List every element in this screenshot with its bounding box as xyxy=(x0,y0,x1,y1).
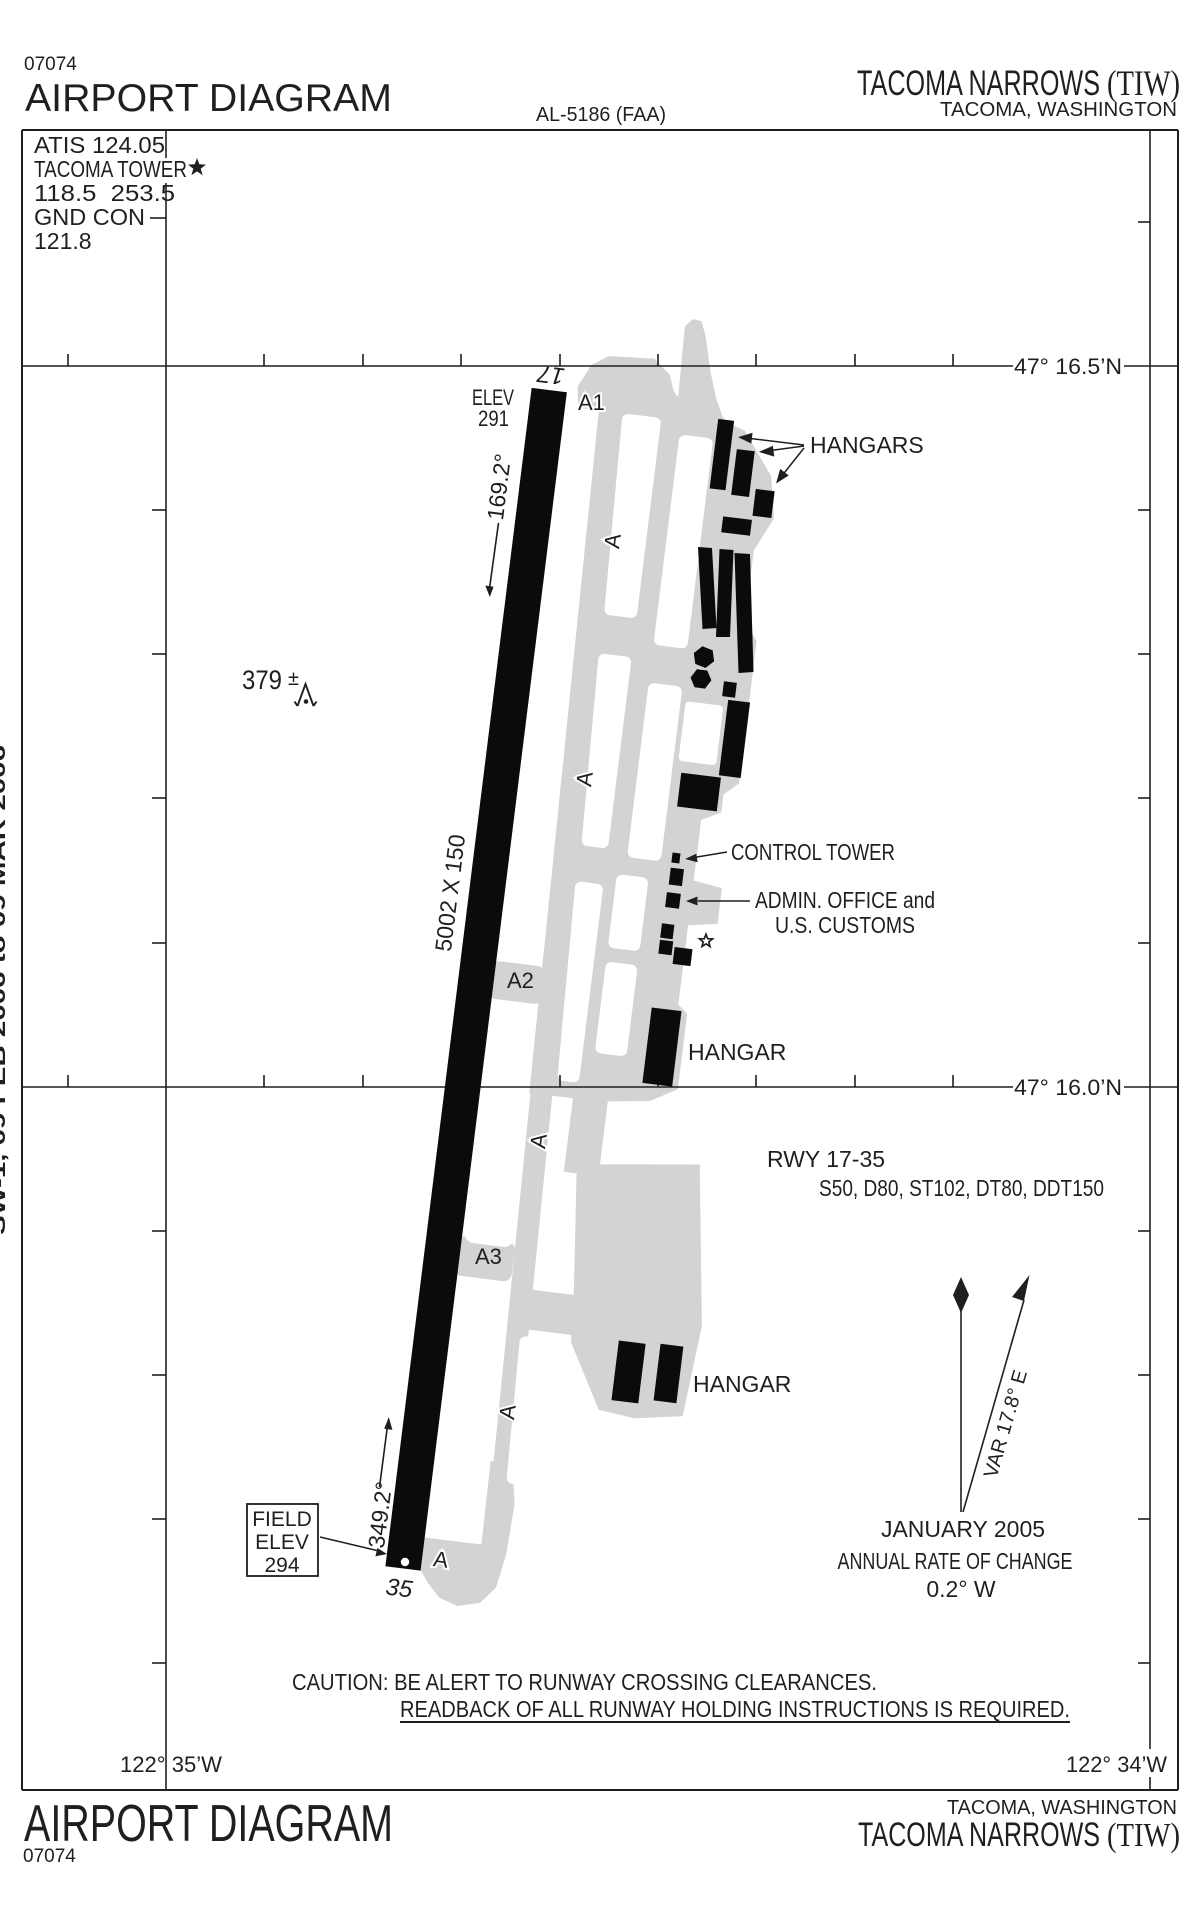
svg-text:READBACK OF ALL RUNWAY HOLDING: READBACK OF ALL RUNWAY HOLDING INSTRUCTI… xyxy=(400,1696,1070,1722)
svg-text:TACOMA NARROWS (TIW): TACOMA NARROWS (TIW) xyxy=(857,63,1180,103)
svg-text:RWY 17-35: RWY 17-35 xyxy=(767,1146,885,1172)
svg-text:CAUTION: BE ALERT TO RUNWAY CR: CAUTION: BE ALERT TO RUNWAY CROSSING CLE… xyxy=(292,1669,877,1695)
svg-text:CONTROL TOWER: CONTROL TOWER xyxy=(731,839,895,865)
svg-text:379: 379 xyxy=(242,665,282,695)
svg-text:HANGAR: HANGAR xyxy=(688,1039,786,1065)
svg-text:47° 16.5’N: 47° 16.5’N xyxy=(1014,354,1122,379)
svg-text:122° 34’W: 122° 34’W xyxy=(1066,1752,1167,1777)
svg-text:0.2° W: 0.2° W xyxy=(926,1576,996,1602)
svg-text:±: ± xyxy=(288,668,299,690)
svg-text:ADMIN. OFFICE and: ADMIN. OFFICE and xyxy=(755,887,935,913)
svg-text:121.8: 121.8 xyxy=(34,228,92,254)
svg-text:07074: 07074 xyxy=(23,1846,76,1867)
svg-text:SW-1, 09 FEB 2006 to 09 MAR 20: SW-1, 09 FEB 2006 to 09 MAR 2006 xyxy=(0,745,10,1235)
svg-text:TACOMA, WASHINGTON: TACOMA, WASHINGTON xyxy=(940,99,1177,121)
svg-text:ELEV: ELEV xyxy=(255,1531,309,1554)
svg-text:A1: A1 xyxy=(578,390,605,415)
svg-text:122° 35’W: 122° 35’W xyxy=(120,1752,222,1777)
svg-text:AIRPORT DIAGRAM: AIRPORT DIAGRAM xyxy=(24,1795,393,1853)
svg-text:AL-5186 (FAA): AL-5186 (FAA) xyxy=(536,104,666,126)
svg-text:118.5 253.5: 118.5 253.5 xyxy=(34,180,175,206)
svg-text:FIELD: FIELD xyxy=(252,1508,312,1531)
svg-text:35: 35 xyxy=(384,1573,414,1603)
svg-text:291: 291 xyxy=(478,406,509,431)
svg-text:AIRPORT DIAGRAM: AIRPORT DIAGRAM xyxy=(25,77,392,120)
svg-text:TACOMA NARROWS (TIW): TACOMA NARROWS (TIW) xyxy=(858,1816,1180,1854)
svg-text:JANUARY 2005: JANUARY 2005 xyxy=(881,1516,1045,1542)
svg-text:GND CON: GND CON xyxy=(34,204,145,230)
svg-text:S50, D80, ST102, DT80, DDT150: S50, D80, ST102, DT80, DDT150 xyxy=(819,1175,1104,1201)
svg-text:ANNUAL RATE OF CHANGE: ANNUAL RATE OF CHANGE xyxy=(838,1548,1073,1574)
svg-text:47° 16.0’N: 47° 16.0’N xyxy=(1014,1075,1122,1100)
svg-text:HANGARS: HANGARS xyxy=(810,432,924,458)
svg-text:A2: A2 xyxy=(507,968,534,993)
svg-text:A3: A3 xyxy=(475,1244,502,1269)
svg-text:294: 294 xyxy=(264,1554,299,1577)
svg-text:TACOMA TOWER: TACOMA TOWER xyxy=(34,156,187,182)
svg-text:07074: 07074 xyxy=(24,54,77,75)
svg-text:17: 17 xyxy=(535,359,566,389)
svg-text:HANGAR: HANGAR xyxy=(693,1371,791,1397)
svg-text:U.S. CUSTOMS: U.S. CUSTOMS xyxy=(775,912,915,938)
svg-text:ATIS 124.05: ATIS 124.05 xyxy=(34,132,165,158)
